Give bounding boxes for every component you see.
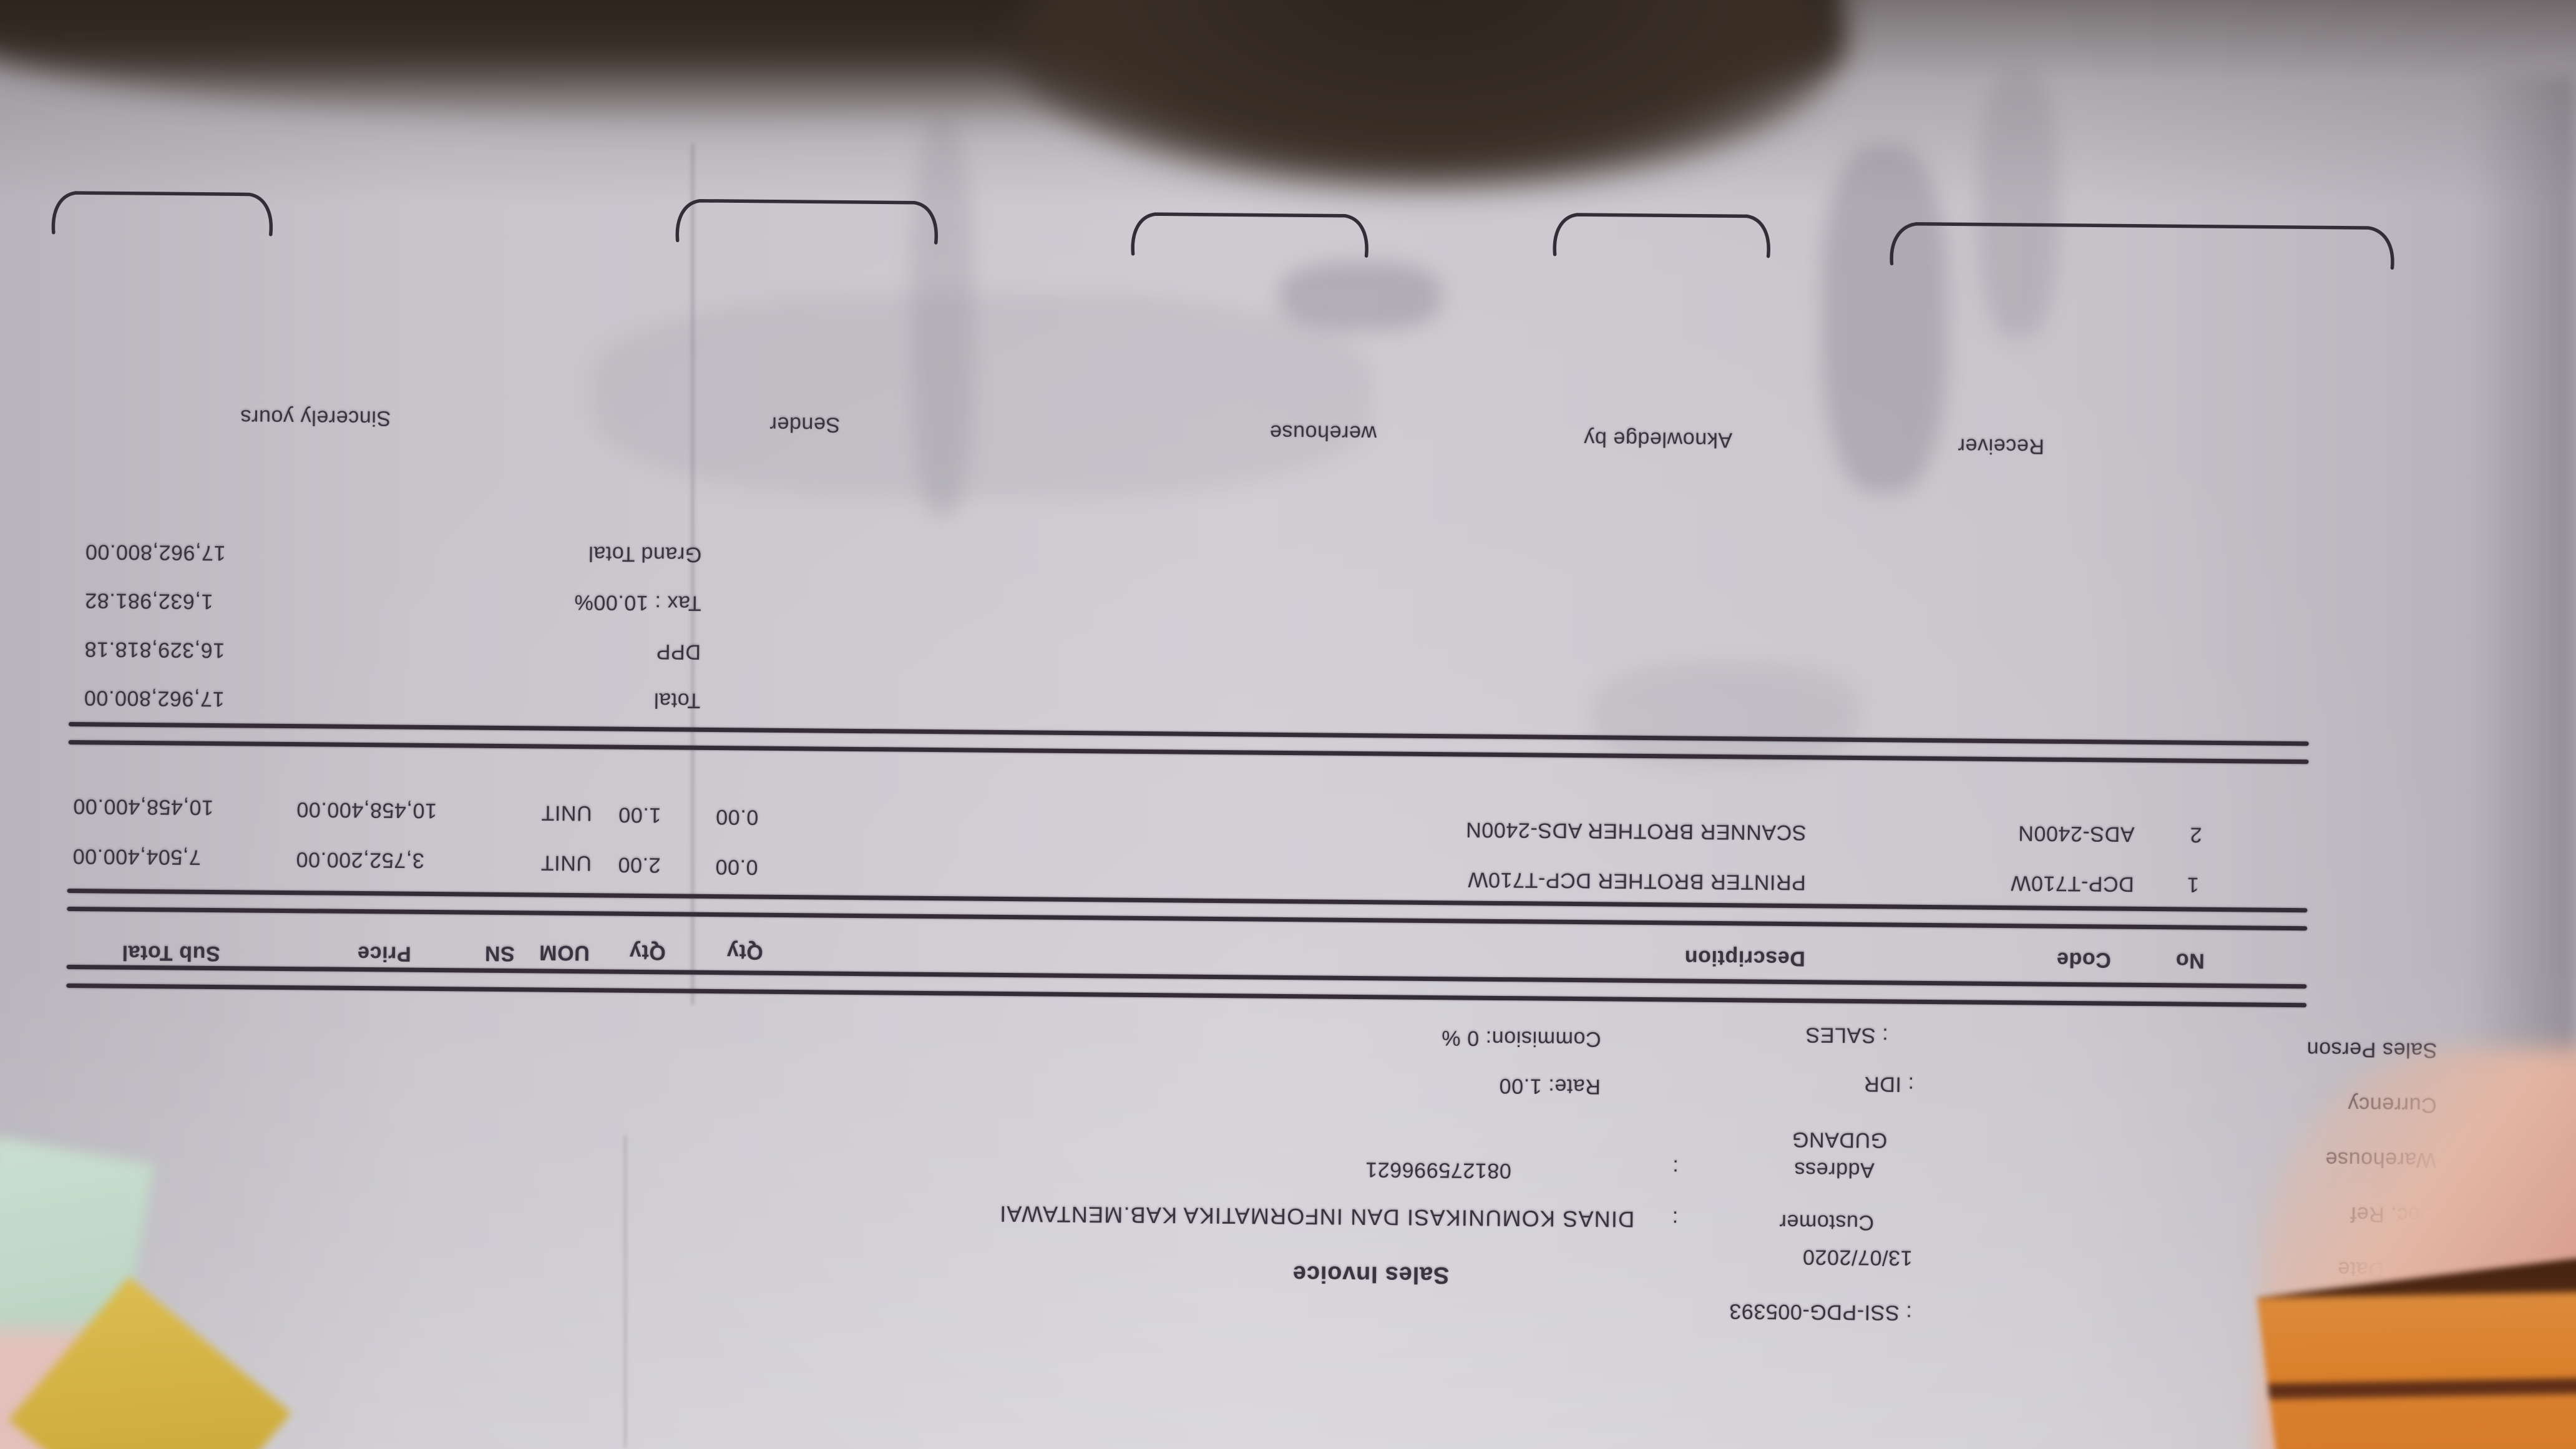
row1-code: DCP-T710W (2011, 871, 2134, 896)
total-label: Total (653, 688, 700, 713)
tax-value: 1,632,981.82 (84, 588, 461, 615)
warehouse-value: GUDANG (1792, 1127, 1887, 1152)
table-rule (67, 965, 2307, 988)
row2-price: 10,458,400.00 (296, 797, 479, 823)
address-label: Address (1794, 1157, 1875, 1182)
row2-qty2: 1.00 (618, 803, 696, 827)
document-title: Sales Invoice (1292, 1260, 1450, 1288)
signature-line-acknowledge-by (1552, 208, 1772, 263)
row1-qty2: 2.00 (618, 852, 695, 877)
signature-line-receiver (1888, 217, 2396, 274)
address-colon: : (1672, 1154, 1679, 1179)
row1-uom: UNIT (540, 851, 592, 876)
col-header-qty1: Qty (726, 939, 763, 964)
table-rule (69, 722, 2309, 746)
signature-line-warehouse (1129, 208, 1370, 262)
col-header-price: Price (357, 941, 411, 966)
col-header-description: Description (1684, 945, 1805, 971)
customer-value: DINAS KOMUNIKASI DAN INFORMATIKA KAB.MEN… (999, 1201, 1634, 1232)
col-header-uom: UOM (539, 940, 589, 965)
doc-date-value: 13/07/2020 (1802, 1244, 1913, 1270)
photo-scene: Doc. Number : SSI-PDG-005393 Sales Invoi… (0, 0, 2576, 1449)
row2-code: ADS-2400N (2018, 821, 2135, 846)
tax-label: Tax : 10.00% (574, 590, 701, 615)
row1-price: 3,752,200.00 (296, 847, 478, 873)
row1-no: 1 (2187, 872, 2199, 897)
row2-uom: UNIT (541, 801, 592, 826)
rate-value: Rate: 1.00 (1499, 1073, 1601, 1098)
doc-number-value: : SSI-PDG-005393 (1729, 1299, 1912, 1325)
signature-label-warehouse: werehouse (1269, 420, 1377, 445)
customer-colon: : (1672, 1206, 1678, 1230)
currency-value: : IDR (1863, 1071, 1914, 1096)
grand-total-label: Grand Total (588, 541, 701, 567)
row2-subtotal: 10,458,400.00 (73, 794, 279, 820)
grand-total-value: 17,962,800.00 (85, 539, 462, 567)
table-rule (67, 907, 2307, 930)
col-header-code: Code (2056, 947, 2111, 972)
row2-no: 2 (2190, 822, 2202, 847)
invoice-document: Doc. Number : SSI-PDG-005393 Sales Invoi… (0, 0, 2576, 1449)
col-header-sn: SN (484, 941, 515, 965)
customer-label: Customer (1779, 1209, 1875, 1234)
sales-person-value: : SALES (1805, 1022, 1888, 1047)
dpp-label: DPP (656, 639, 701, 664)
row1-description: PRINTER BROTHER DCP-T710W (1468, 867, 1806, 895)
commission-value: Commision: 0 % (1442, 1025, 1601, 1051)
signature-label-sender: Sender (769, 412, 841, 437)
signature-line-sincerely-yours (51, 187, 275, 241)
row1-subtotal: 7,504,400.00 (72, 844, 278, 870)
address-value: 081275996621 (1365, 1157, 1511, 1183)
total-value: 17,962,800.00 (84, 685, 461, 713)
signature-line-sender (675, 194, 940, 249)
row1-qty1: 0.00 (715, 854, 793, 879)
col-header-subtotal: Sub Total (122, 940, 220, 965)
row2-description: SCANNER BROTHER ADS-2400N (1465, 817, 1806, 844)
signature-label-sincerely-yours: Sincerely yours (240, 404, 391, 430)
signature-label-receiver: Receiver (1958, 433, 2044, 458)
col-header-no: No (2175, 948, 2205, 972)
col-header-qty2: Qty (629, 940, 666, 965)
signature-label-acknowledge-by: Aknowledge by (1583, 426, 1732, 452)
table-rule (67, 889, 2308, 912)
table-rule (66, 983, 2306, 1007)
dpp-value: 16,329,818.18 (84, 637, 461, 664)
table-rule (69, 740, 2309, 764)
row2-qty1: 0.00 (716, 804, 793, 829)
